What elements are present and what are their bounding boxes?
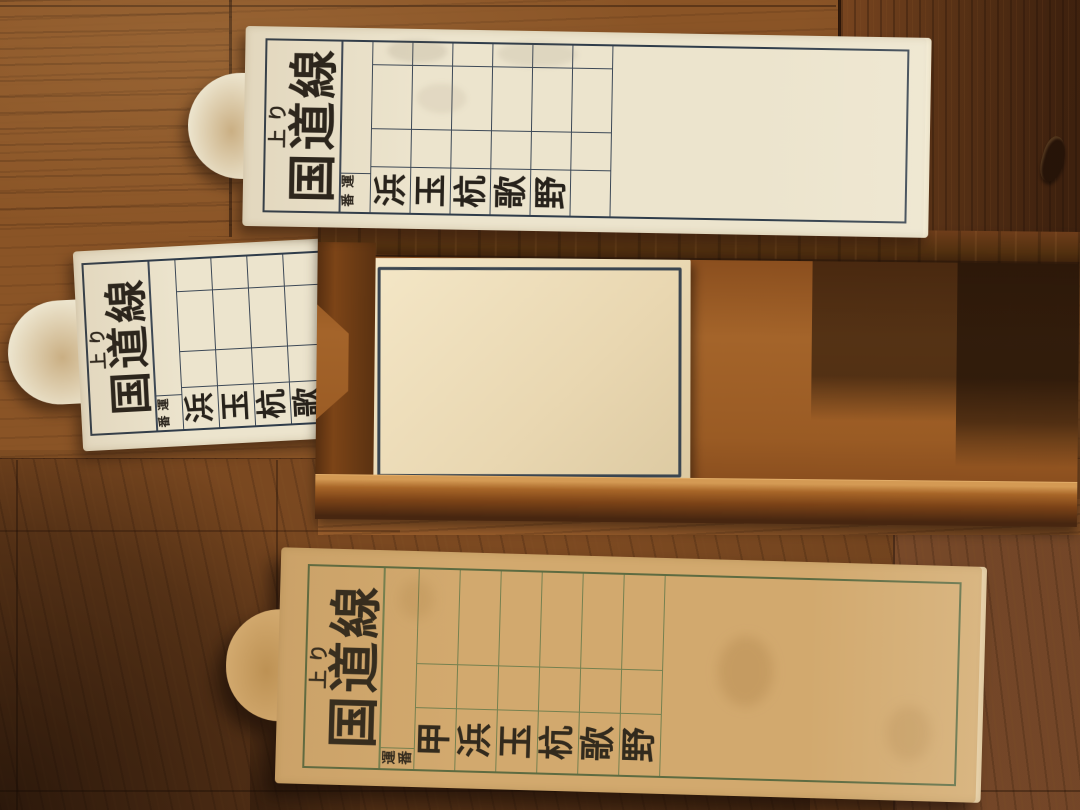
grid-cell: [581, 574, 624, 669]
holder-bottom-rail: [315, 474, 1077, 527]
station-cell: 浜: [371, 166, 411, 213]
blank-plate: [368, 258, 690, 487]
station-cell: 野: [619, 713, 661, 776]
grid-cell: [453, 44, 492, 67]
grid-cell: [499, 571, 542, 666]
grid-cell: [458, 570, 501, 665]
plate-top-tab: [187, 72, 247, 179]
station-cell: 玉: [411, 167, 451, 214]
grid-cell: [371, 128, 411, 167]
grid-row: 浜: [371, 42, 414, 213]
station-cell: 野: [530, 169, 570, 216]
grid-cell: [416, 663, 457, 708]
plate-bottom-title: 上り 国道線: [304, 566, 386, 768]
grid-cell: [211, 257, 248, 290]
grid-cell: [457, 664, 498, 709]
station-cell: 玉: [218, 383, 255, 427]
plate-bottom-frame: 上り 国道線 運番 甲 浜 玉 杭 歌 野: [302, 564, 961, 786]
line-name: 国道線: [288, 46, 340, 206]
station-cell: 杭: [537, 711, 579, 774]
grid-cell: [177, 289, 215, 351]
plate-top-frame: 上り 国道線 運番 浜 玉 杭 歌 野: [262, 38, 909, 223]
duty-number-label: 運番: [341, 173, 371, 213]
grid-cell: [622, 575, 665, 670]
station-cell: 歌: [578, 712, 620, 775]
grid-cell: [571, 132, 611, 171]
line-name: 国道線: [328, 583, 385, 752]
grid-cell: [580, 668, 621, 713]
grid-cell: [531, 131, 571, 170]
photo-scene: 上り 国道線 運番 浜 玉 杭 歌 野: [0, 0, 1080, 810]
grid-cell: [175, 258, 212, 291]
grid-cell: [213, 287, 251, 349]
grid-cell: [341, 42, 372, 173]
station-cell: 杭: [451, 168, 491, 215]
grid-cell: [491, 130, 531, 169]
grid-cell: [572, 68, 612, 133]
grid-cell: [573, 46, 612, 69]
plate-top-title: 上り 国道線: [265, 40, 344, 211]
grid-row: 野: [619, 575, 666, 776]
grid-cell: [540, 573, 583, 668]
grid-cell: [180, 349, 217, 387]
paper-stain: [187, 72, 247, 179]
wooden-plate-holder: [315, 224, 1080, 526]
grid-cell: [372, 64, 412, 129]
line-name: 国道線: [105, 276, 155, 419]
plate-middle-tab: [5, 299, 82, 407]
plate-bottom-tab: [225, 608, 282, 721]
grid-row: 玉: [411, 43, 454, 214]
grid-cell: [451, 130, 491, 169]
grid-cell: [252, 346, 289, 384]
grid-row: 野: [530, 45, 573, 216]
duty-number-label: 運番: [156, 394, 183, 430]
grid-row: 杭: [537, 573, 584, 774]
ink-ghost-mark: [416, 83, 467, 114]
plate-middle-title: 上り 国道線: [83, 262, 158, 434]
grid-cell: [249, 286, 287, 348]
cast-shadow: [955, 261, 1079, 486]
grid-row: 歌: [490, 44, 533, 215]
grid-cell: [532, 67, 572, 132]
grid-cell: [216, 347, 253, 385]
grid-row: 浜: [455, 570, 502, 771]
paper-stain: [5, 299, 82, 407]
blank-plate-frame: [377, 267, 681, 478]
grid-row-duty: 運番: [341, 42, 374, 212]
station-cell: 浜: [455, 708, 497, 771]
paper-stain: [225, 608, 282, 721]
station-cell: 玉: [496, 709, 538, 772]
grid-cell: [283, 253, 320, 286]
grid-cell: [411, 129, 451, 168]
grid-row: 歌: [578, 574, 625, 775]
grid-row: 玉: [496, 571, 543, 772]
plate-bottom-body: 上り 国道線 運番 甲 浜 玉 杭 歌 野: [275, 547, 987, 803]
grid-cell: [498, 665, 539, 710]
grid-cell: [247, 255, 284, 288]
station-cell: 杭: [254, 381, 291, 425]
plate-top-body: 上り 国道線 運番 浜 玉 杭 歌 野: [242, 26, 931, 238]
grid-cell: [492, 66, 532, 131]
grid-row-empty: [570, 46, 613, 217]
duty-number-label: 運番: [380, 747, 414, 769]
station-cell: 浜: [182, 385, 219, 429]
grid-cell: [621, 669, 662, 714]
grid-row: 杭: [451, 44, 494, 215]
destination-plate-bottom: 上り 国道線 運番 甲 浜 玉 杭 歌 野: [223, 546, 987, 803]
destination-plate-top: 上り 国道線 運番 浜 玉 杭 歌 野: [186, 25, 931, 238]
station-cell: 歌: [490, 168, 530, 215]
station-cell-empty: [570, 170, 610, 217]
grid-cell: [539, 667, 580, 712]
station-cell: 甲: [414, 707, 456, 770]
